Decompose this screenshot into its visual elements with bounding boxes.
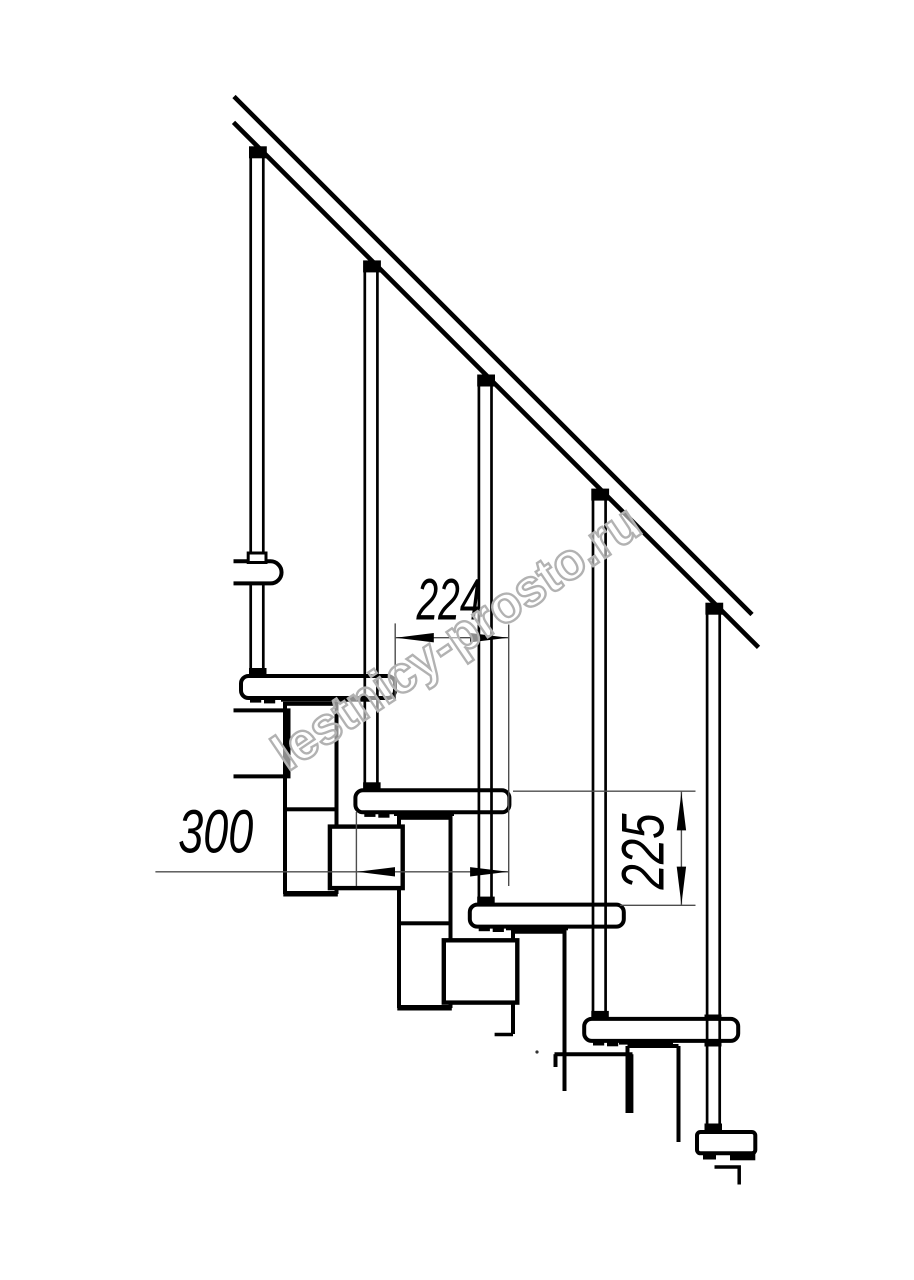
svg-text:300: 300 bbox=[178, 798, 253, 866]
svg-text:225: 225 bbox=[610, 813, 677, 890]
